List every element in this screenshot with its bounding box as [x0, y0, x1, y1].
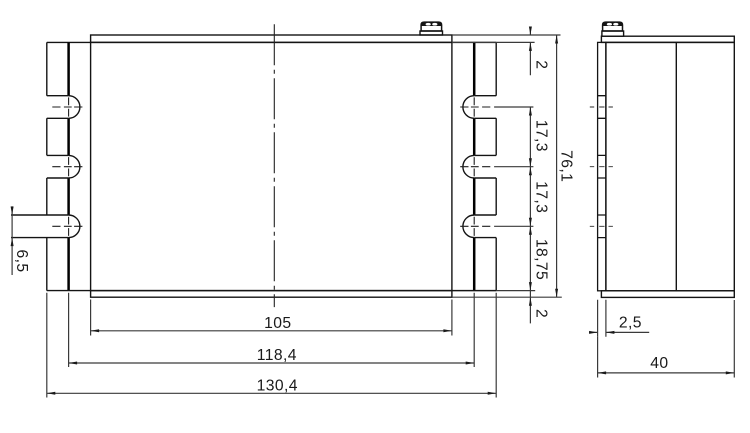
svg-text:105: 105: [264, 315, 291, 332]
svg-text:17,3: 17,3: [532, 181, 549, 213]
svg-text:6,5: 6,5: [13, 249, 30, 272]
svg-text:118,4: 118,4: [257, 347, 297, 364]
svg-text:2: 2: [532, 60, 549, 69]
svg-text:17,3: 17,3: [532, 120, 549, 152]
svg-text:130,4: 130,4: [257, 377, 298, 394]
svg-text:40: 40: [650, 355, 668, 372]
svg-text:2,5: 2,5: [619, 315, 642, 332]
svg-text:18,75: 18,75: [532, 239, 549, 280]
svg-text:76,1: 76,1: [558, 150, 575, 182]
svg-text:2: 2: [532, 309, 549, 318]
